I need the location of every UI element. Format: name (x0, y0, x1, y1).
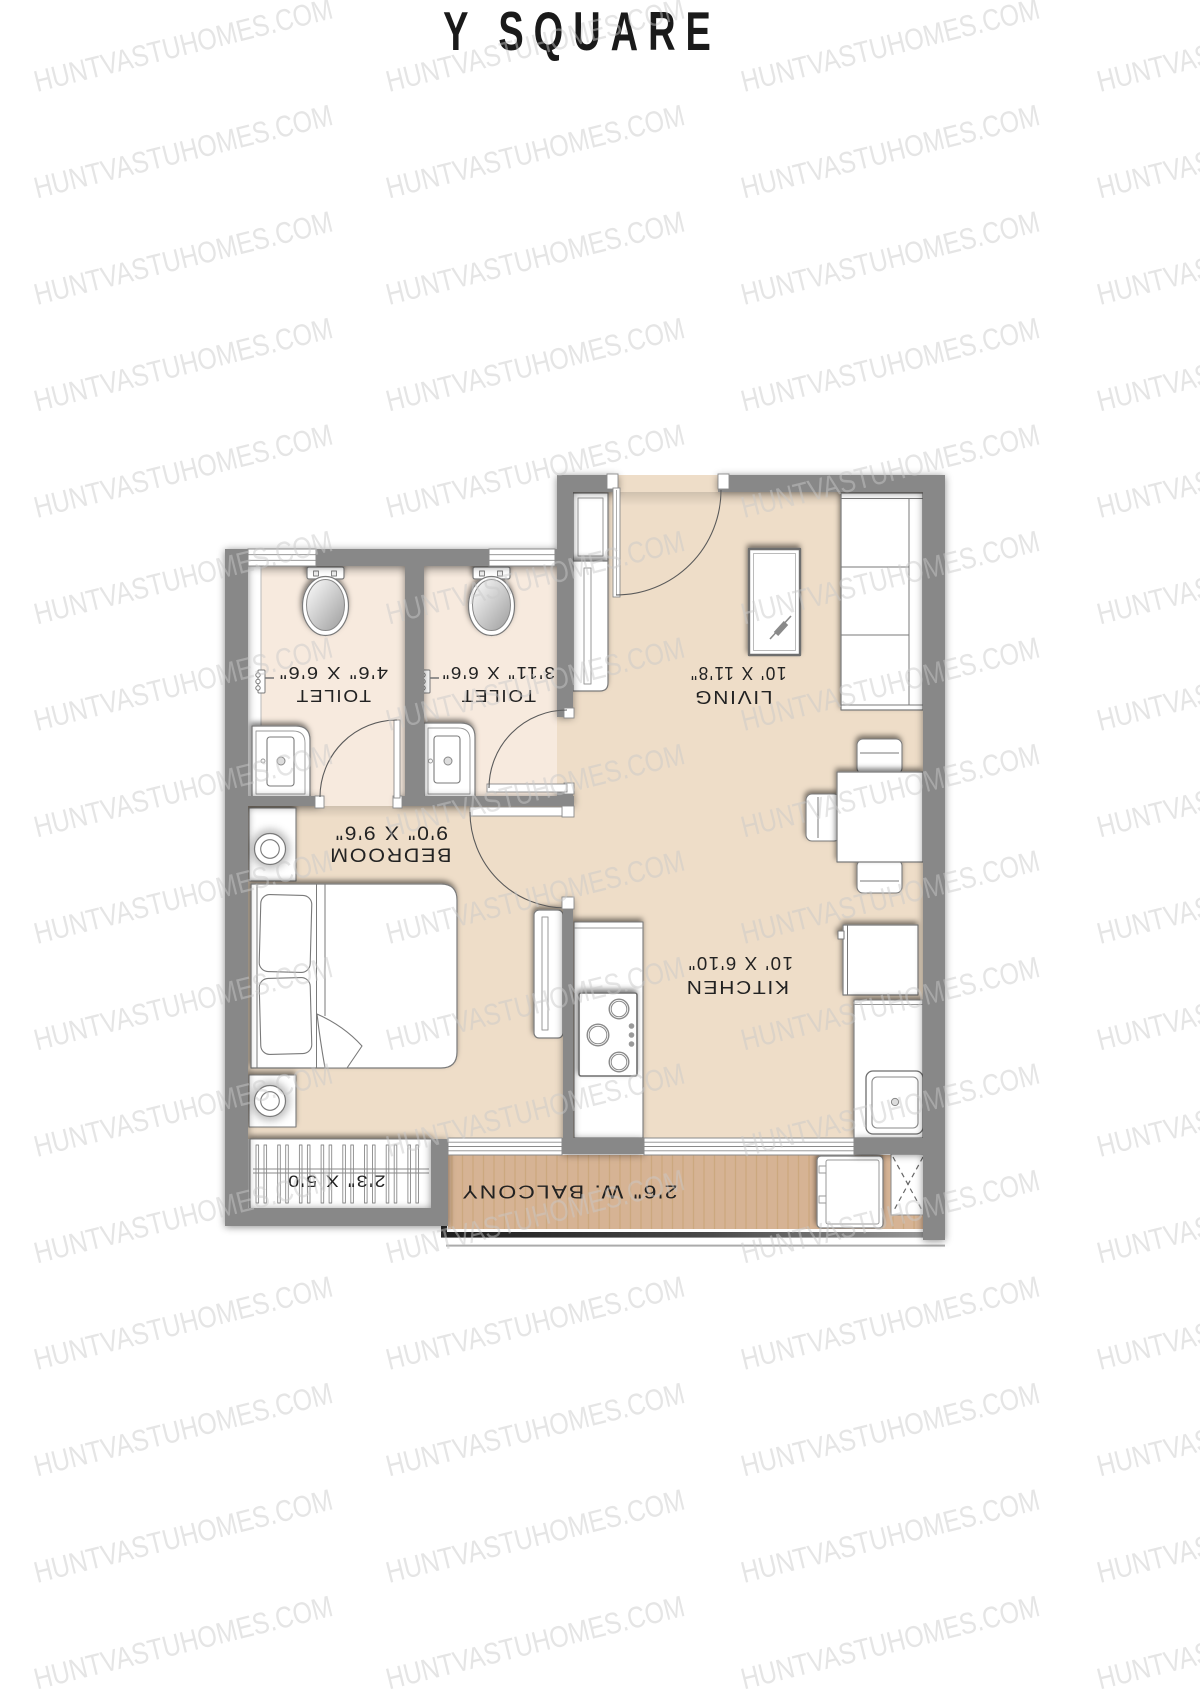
svg-text:10' X 6'10": 10' X 6'10" (687, 953, 793, 973)
svg-text:KITCHEN: KITCHEN (685, 977, 789, 997)
svg-text:10' X 11'8": 10' X 11'8" (690, 663, 787, 683)
svg-text:BEDROOM: BEDROOM (329, 844, 452, 865)
svg-text:TOILET: TOILET (295, 686, 371, 706)
